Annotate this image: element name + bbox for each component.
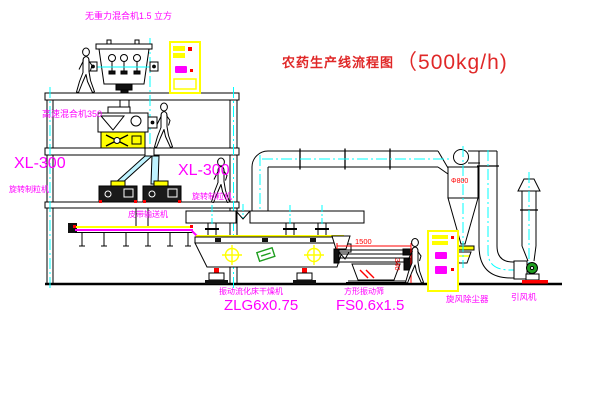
title-chinese: 农药生产线流程图: [282, 46, 394, 71]
title-capacity: （500kg/h): [396, 46, 508, 76]
control-cabinet-upper: [170, 42, 200, 93]
control-cabinet-lower: [428, 231, 458, 291]
fluid-bed-dryer-drawing: [195, 236, 351, 284]
indicator-light-icon: [190, 69, 193, 72]
indicator-light-icon: [451, 268, 454, 271]
dryer-hood-ducts: [186, 204, 364, 237]
granulator-right-drawing: [143, 181, 181, 203]
y-chute-drawing: [114, 156, 159, 184]
label-granulator-right-name: 旋转制粒机: [192, 193, 232, 201]
label-high-speed-mixer: 高速混合机350: [42, 110, 102, 119]
label-dryer-name: 振动流化床干燥机: [219, 288, 283, 296]
inlet-stub-pipes: [205, 223, 329, 237]
dryer-feet: [205, 268, 316, 284]
granulator-left-drawing: [99, 181, 137, 203]
label-gravity-mixer: 无重力混合机1.5 立方: [85, 12, 172, 21]
label-granulator-left-model: XL-300: [14, 156, 66, 172]
label-granulator-right-model: XL-300: [178, 163, 230, 179]
diagram-canvas: 农药生产线流程图 （500kg/h) 无重力混合机1.5 立方 高速混合机350…: [0, 0, 600, 403]
exhaust-duct-drawing: [252, 149, 452, 213]
cabinet-display-icon: [435, 252, 447, 259]
dimension-screen-length: 1500: [355, 238, 372, 246]
dimension-screen-height: 340: [394, 258, 402, 271]
induced-draft-fan-drawing: [514, 261, 548, 284]
label-dryer-model: ZLG6x0.75: [224, 298, 298, 313]
label-screen-model: FS0.6x1.5: [336, 298, 404, 313]
label-cyclone: 旋风除尘器: [446, 295, 489, 304]
downcomer-duct-drawing: [477, 150, 521, 278]
cyclone-outlet-elbow: [454, 150, 469, 165]
label-belt-conveyor: 皮带输送机: [128, 211, 168, 219]
label-granulator-left-name: 旋转制粒机: [9, 186, 49, 194]
packing-unit: [101, 132, 145, 148]
dimension-cyclone-diameter: Φ800: [451, 178, 468, 185]
label-fan: 引风机: [511, 293, 537, 302]
diagram-title: 农药生产线流程图 （500kg/h): [282, 46, 508, 76]
cabinet-display-icon: [175, 66, 187, 73]
label-screen-name: 方形振动筛: [344, 288, 384, 296]
